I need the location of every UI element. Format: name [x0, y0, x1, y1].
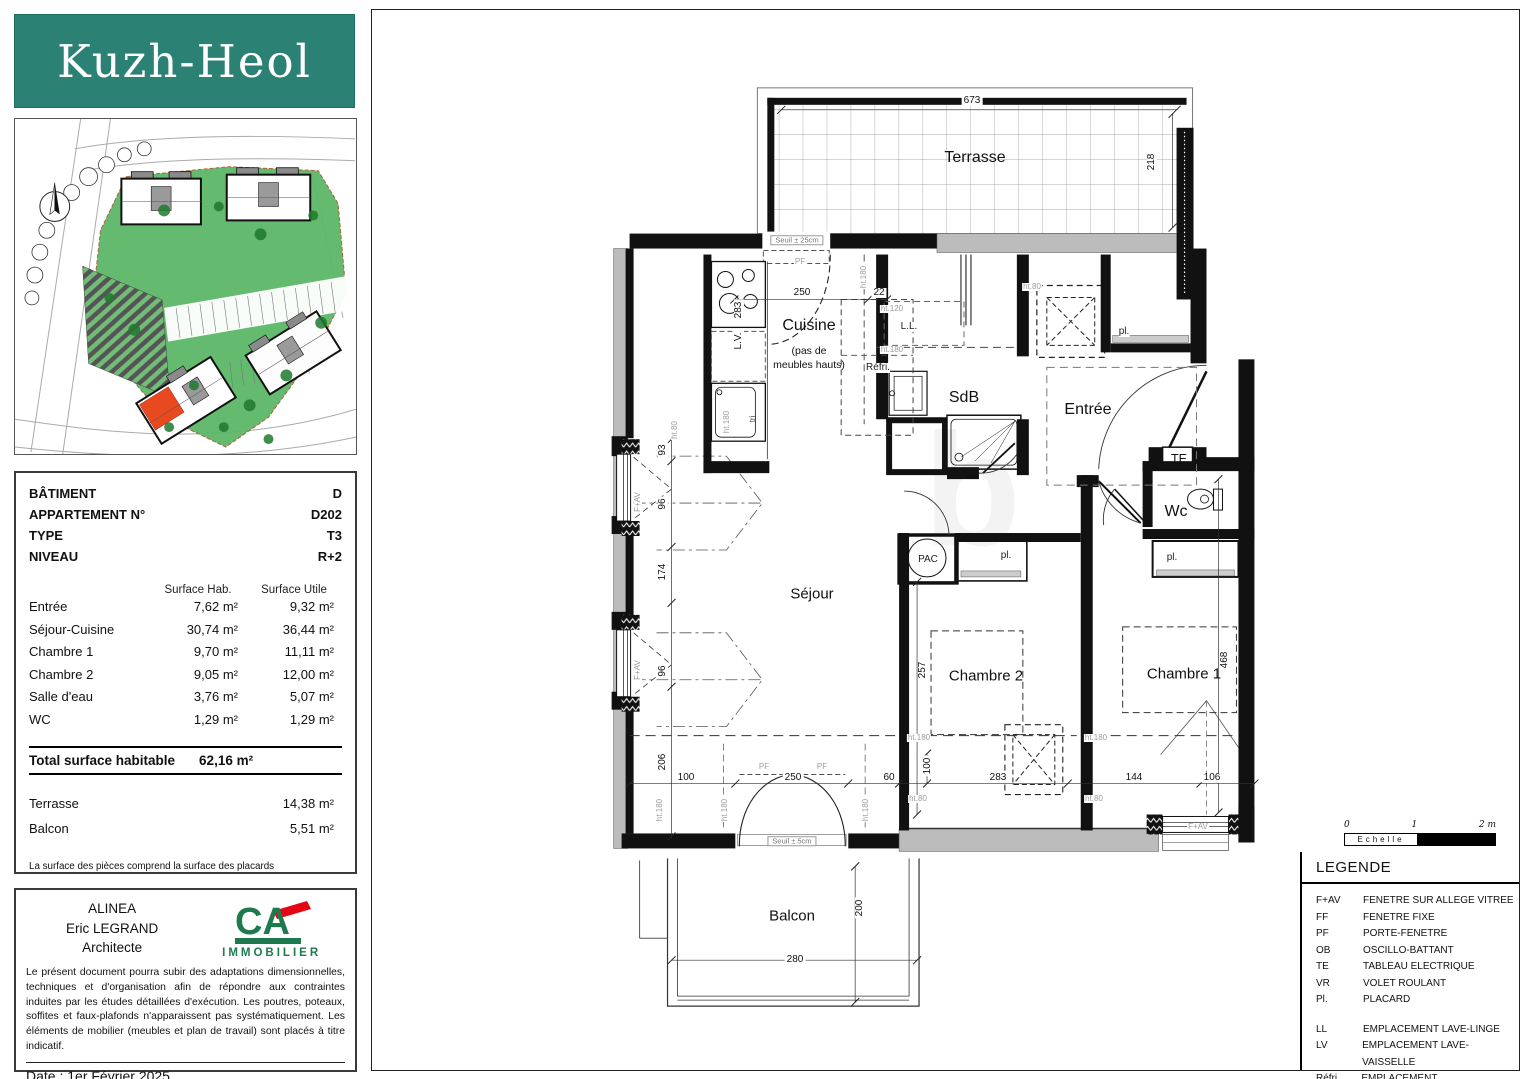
- plan-label: 100: [676, 773, 697, 783]
- surface-table-header: Surface Hab. Surface Utile: [29, 584, 342, 596]
- project-logo: Kuzh-Heol: [14, 14, 355, 108]
- architect-identity: ALINEA Eric LEGRAND Architecte: [26, 899, 198, 958]
- room-name: Entrée: [29, 596, 150, 619]
- total-value: 62,16 m²: [199, 753, 253, 768]
- plan-label: ht.80: [1022, 283, 1042, 291]
- plan-label: meubles hauts): [773, 360, 845, 371]
- concrete-wall: [937, 234, 1177, 253]
- legend-abbr: Réfri.: [1316, 1071, 1361, 1079]
- sidebar: Kuzh-Heol: [14, 14, 357, 1072]
- ca-logo-icon: CA: [229, 898, 315, 946]
- legend-abbr: Pl.: [1316, 992, 1363, 1009]
- field-value: D: [333, 483, 342, 504]
- svg-text:CA: CA: [235, 901, 290, 943]
- apartment-field-row: NIVEAUR+2: [29, 546, 342, 567]
- plan-label: 106: [1202, 773, 1223, 783]
- legend-row: LVEMPLACEMENT LAVE-VAISSELLE: [1316, 1038, 1519, 1071]
- field-value: R+2: [318, 546, 342, 567]
- scale-label: Echelle: [1344, 833, 1418, 846]
- apartment-field-row: TYPET3: [29, 525, 342, 546]
- site-plan: [14, 118, 357, 455]
- legend-abbr: FF: [1316, 910, 1363, 927]
- plan-label: pl.: [1119, 327, 1130, 337]
- architect-firm: ALINEA: [26, 899, 198, 919]
- legend-row: Réfri.EMPLACEMENT REFRIGERATEUR: [1316, 1071, 1519, 1079]
- outdoor-value: 14,38 m²: [246, 791, 342, 816]
- legend-label: FENETRE FIXE: [1363, 910, 1435, 927]
- plan-label: TE: [1171, 453, 1187, 466]
- outdoor-surfaces: Terrasse14,38 m²Balcon5,51 m²: [29, 791, 342, 841]
- terrasse-tiles: [774, 105, 1178, 234]
- legend-abbr: VR: [1316, 976, 1363, 993]
- plan-label: ht.80: [671, 420, 679, 440]
- outdoor-row: Terrasse14,38 m²: [29, 791, 342, 816]
- table-row: WC1,29 m²1,29 m²: [29, 709, 342, 732]
- plan-label: 218: [1147, 152, 1157, 173]
- plan-label: 283: [734, 300, 744, 321]
- surface-table: Entrée7,62 m²9,32 m²Séjour-Cuisine30,74 …: [29, 596, 342, 731]
- legend-label: PLACARD: [1363, 992, 1410, 1009]
- surface-hab-value: 7,62 m²: [150, 596, 246, 619]
- field-value: T3: [327, 525, 342, 546]
- field-label: TYPE: [29, 525, 63, 546]
- table-row: Chambre 19,70 m²11,11 m²: [29, 641, 342, 664]
- legend-row: FFFENETRE FIXE: [1316, 910, 1519, 927]
- legend-label: EMPLACEMENT REFRIGERATEUR: [1361, 1071, 1519, 1079]
- plan-label: PF: [794, 258, 806, 266]
- outdoor-row: Balcon5,51 m²: [29, 816, 342, 841]
- plan-label: 100: [923, 756, 933, 777]
- total-row: Total surface habitable 62,16 m²: [29, 746, 342, 775]
- plan-label: tri: [749, 416, 757, 423]
- floor-plan: b Terrasse673218Seuil ± 25cmPF25022Cuisi…: [371, 9, 1520, 1071]
- plan-label: Wc: [1164, 504, 1187, 520]
- surface-note: La surface des pièces comprend la surfac…: [29, 861, 342, 872]
- plan-label: F+AV: [634, 659, 642, 681]
- field-label: BÂTIMENT: [29, 483, 96, 504]
- plan-label: F+AV: [1187, 823, 1209, 831]
- legend-title: LEGENDE: [1302, 852, 1519, 884]
- plan-label: Seuil ± 5cm: [767, 836, 816, 846]
- legend-label: OSCILLO-BATTANT: [1363, 943, 1454, 960]
- plan-label: PAC: [918, 555, 938, 565]
- apartment-info-panel: BÂTIMENTDAPPARTEMENT N°D202TYPET3NIVEAUR…: [14, 471, 357, 874]
- plan-label: PF: [758, 763, 770, 771]
- plan-label: F+AV: [634, 491, 642, 513]
- scale-black-segment: [1418, 833, 1496, 846]
- plan-label: ht.180: [723, 410, 731, 434]
- table-row: Séjour-Cuisine30,74 m²36,44 m²: [29, 619, 342, 642]
- outdoor-label: Balcon: [29, 816, 69, 841]
- surface-utile-value: 11,11 m²: [246, 641, 342, 664]
- roller-shutter: [622, 439, 640, 454]
- total-label: Total surface habitable: [29, 753, 175, 768]
- plan-label: PF: [816, 763, 828, 771]
- plan-label: (pas de: [791, 346, 826, 357]
- legend-row: F+AVFENETRE SUR ALLEGE VITREE: [1316, 893, 1519, 910]
- plan-label: ht.80: [908, 795, 928, 803]
- outdoor-value: 5,51 m²: [246, 816, 342, 841]
- scale-tick: 0: [1344, 820, 1350, 833]
- plan-label: 673: [962, 96, 983, 106]
- legend-label: TABLEAU ELECTRIQUE: [1363, 959, 1475, 976]
- plan-label: 280: [785, 955, 806, 965]
- legend-abbr: LV: [1316, 1038, 1362, 1071]
- plan-label: Chambre 2: [949, 669, 1023, 684]
- surface-hab-value: 3,76 m²: [150, 686, 246, 709]
- plan-label: ht.180: [860, 265, 868, 289]
- legend-row: LLEMPLACEMENT LAVE-LINGE: [1316, 1022, 1519, 1039]
- architect-name: Eric LEGRAND: [26, 919, 198, 939]
- architect-role: Architecte: [26, 938, 198, 958]
- surface-hab-value: 1,29 m²: [150, 709, 246, 732]
- legend-group: F+AVFENETRE SUR ALLEGE VITREEFFFENETRE F…: [1316, 893, 1519, 1009]
- plan-label: 257: [918, 660, 928, 681]
- plan-label: Balcon: [769, 909, 815, 924]
- legend: LEGENDE F+AVFENETRE SUR ALLEGE VITREEFFF…: [1300, 852, 1519, 1070]
- plan-label: ht.180: [721, 798, 729, 822]
- plan-label: 250: [792, 288, 813, 298]
- window-projection: [634, 456, 763, 726]
- scale-tick: 1: [1411, 820, 1417, 833]
- legend-label: EMPLACEMENT LAVE-VAISSELLE: [1362, 1038, 1519, 1071]
- plan-label: 93: [658, 442, 668, 457]
- sink: [711, 383, 765, 441]
- apartment-field-row: APPARTEMENT N°D202: [29, 504, 342, 525]
- plan-label: Réfri.: [866, 363, 890, 373]
- legend-entries: F+AVFENETRE SUR ALLEGE VITREEFFFENETRE F…: [1302, 884, 1519, 1079]
- room-name: Chambre 2: [29, 664, 150, 687]
- surface-utile-value: 36,44 m²: [246, 619, 342, 642]
- legend-row: PFPORTE-FENETRE: [1316, 926, 1519, 943]
- plan-label: 60: [881, 773, 896, 783]
- plan-label: 468: [1220, 650, 1230, 671]
- plan-label: 206: [658, 752, 668, 773]
- legend-abbr: PF: [1316, 926, 1363, 943]
- surface-hab-value: 9,05 m²: [150, 664, 246, 687]
- surface-utile-value: 9,32 m²: [246, 596, 342, 619]
- surface-hab-value: 9,70 m²: [150, 641, 246, 664]
- disclaimer-text: Le présent document pourra subir des ada…: [26, 966, 345, 1055]
- room-name: Chambre 1: [29, 641, 150, 664]
- plan-label: Séjour: [790, 587, 833, 602]
- plan-label: Chambre 1: [1147, 667, 1221, 682]
- project-title: Kuzh-Heol: [57, 35, 312, 88]
- legend-label: EMPLACEMENT LAVE-LINGE: [1363, 1022, 1500, 1039]
- plan-label: Terrasse: [944, 150, 1005, 166]
- apartment-field-row: BÂTIMENTD: [29, 483, 342, 504]
- scale-bar: 0 1 2 m Echelle: [1344, 820, 1496, 846]
- plan-label: 96: [658, 663, 668, 678]
- plan-label: Cuisine: [782, 318, 835, 334]
- plan-label: Entrée: [1064, 402, 1111, 418]
- plan-label: ht.180: [1084, 734, 1108, 742]
- table-row: Entrée7,62 m²9,32 m²: [29, 596, 342, 619]
- surface-utile-value: 5,07 m²: [246, 686, 342, 709]
- plan-label: ht.180: [862, 798, 870, 822]
- balcony-outline: [668, 858, 920, 1006]
- field-label: NIVEAU: [29, 546, 78, 567]
- legend-group: LLEMPLACEMENT LAVE-LINGELVEMPLACEMENT LA…: [1316, 1022, 1519, 1079]
- building-1: [121, 172, 201, 225]
- plan-label: ht.180: [907, 734, 931, 742]
- plan-label: ht.180: [656, 798, 664, 822]
- legend-row: Pl.PLACARD: [1316, 992, 1519, 1009]
- plan-label: 144: [1124, 773, 1145, 783]
- surface-utile-value: 12,00 m²: [246, 664, 342, 687]
- ca-immobilier-logo: CA IMMOBILIER: [198, 898, 345, 959]
- apartment-fields: BÂTIMENTDAPPARTEMENT N°D202TYPET3NIVEAUR…: [29, 483, 342, 567]
- surface-hab-value: 30,74 m²: [150, 619, 246, 642]
- plan-label: ht.80: [1084, 795, 1104, 803]
- field-label: APPARTEMENT N°: [29, 504, 145, 525]
- plan-label: L.V.: [734, 331, 744, 352]
- architect-panel: ALINEA Eric LEGRAND Architecte CA IMMOBI…: [14, 888, 357, 1072]
- plan-label: pl.: [1001, 551, 1012, 561]
- room-name: WC: [29, 709, 150, 732]
- scale-tick: 2 m: [1479, 820, 1496, 833]
- legend-row: TETABLEAU ELECTRIQUE: [1316, 959, 1519, 976]
- floorplan-document: Kuzh-Heol: [0, 0, 1528, 1079]
- room-name: Séjour-Cuisine: [29, 619, 150, 642]
- plan-label: 250: [783, 773, 804, 783]
- legend-row: OBOSCILLO-BATTANT: [1316, 943, 1519, 960]
- plan-label: ht.120: [880, 305, 904, 313]
- site-plan-map: [15, 119, 356, 454]
- legend-label: FENETRE SUR ALLEGE VITREE: [1363, 893, 1514, 910]
- surface-utile-value: 1,29 m²: [246, 709, 342, 732]
- legend-abbr: TE: [1316, 959, 1363, 976]
- plan-label: ht.180: [880, 346, 904, 354]
- legend-row: VRVOLET ROULANT: [1316, 976, 1519, 993]
- surface-hab-header: Surface Hab.: [150, 584, 246, 596]
- field-value: D202: [311, 504, 342, 525]
- table-row: Salle d'eau3,76 m²5,07 m²: [29, 686, 342, 709]
- plan-label: pl.: [1167, 553, 1178, 563]
- document-date: Date : 1er Février 2025: [26, 1062, 345, 1079]
- plan-label: 96: [658, 496, 668, 511]
- scale-ticks: 0 1 2 m: [1344, 820, 1496, 833]
- legend-label: PORTE-FENETRE: [1363, 926, 1447, 943]
- ca-logo-subtitle: IMMOBILIER: [222, 947, 321, 959]
- plan-label: Seuil ± 25cm: [770, 235, 823, 245]
- building-2: [227, 168, 311, 221]
- legend-abbr: OB: [1316, 943, 1363, 960]
- plan-label: 200: [855, 898, 865, 919]
- legend-abbr: F+AV: [1316, 893, 1363, 910]
- plan-label: 283: [988, 773, 1009, 783]
- legend-label: VOLET ROULANT: [1363, 976, 1446, 993]
- legend-abbr: LL: [1316, 1022, 1363, 1039]
- surface-utile-header: Surface Utile: [246, 584, 342, 596]
- room-name: Salle d'eau: [29, 686, 150, 709]
- plan-label: 174: [658, 562, 668, 583]
- plan-label: 22: [871, 288, 886, 298]
- plan-label: L.L.: [901, 322, 918, 332]
- plan-label: SdB: [949, 390, 979, 406]
- outdoor-label: Terrasse: [29, 791, 79, 816]
- table-row: Chambre 29,05 m²12,00 m²: [29, 664, 342, 687]
